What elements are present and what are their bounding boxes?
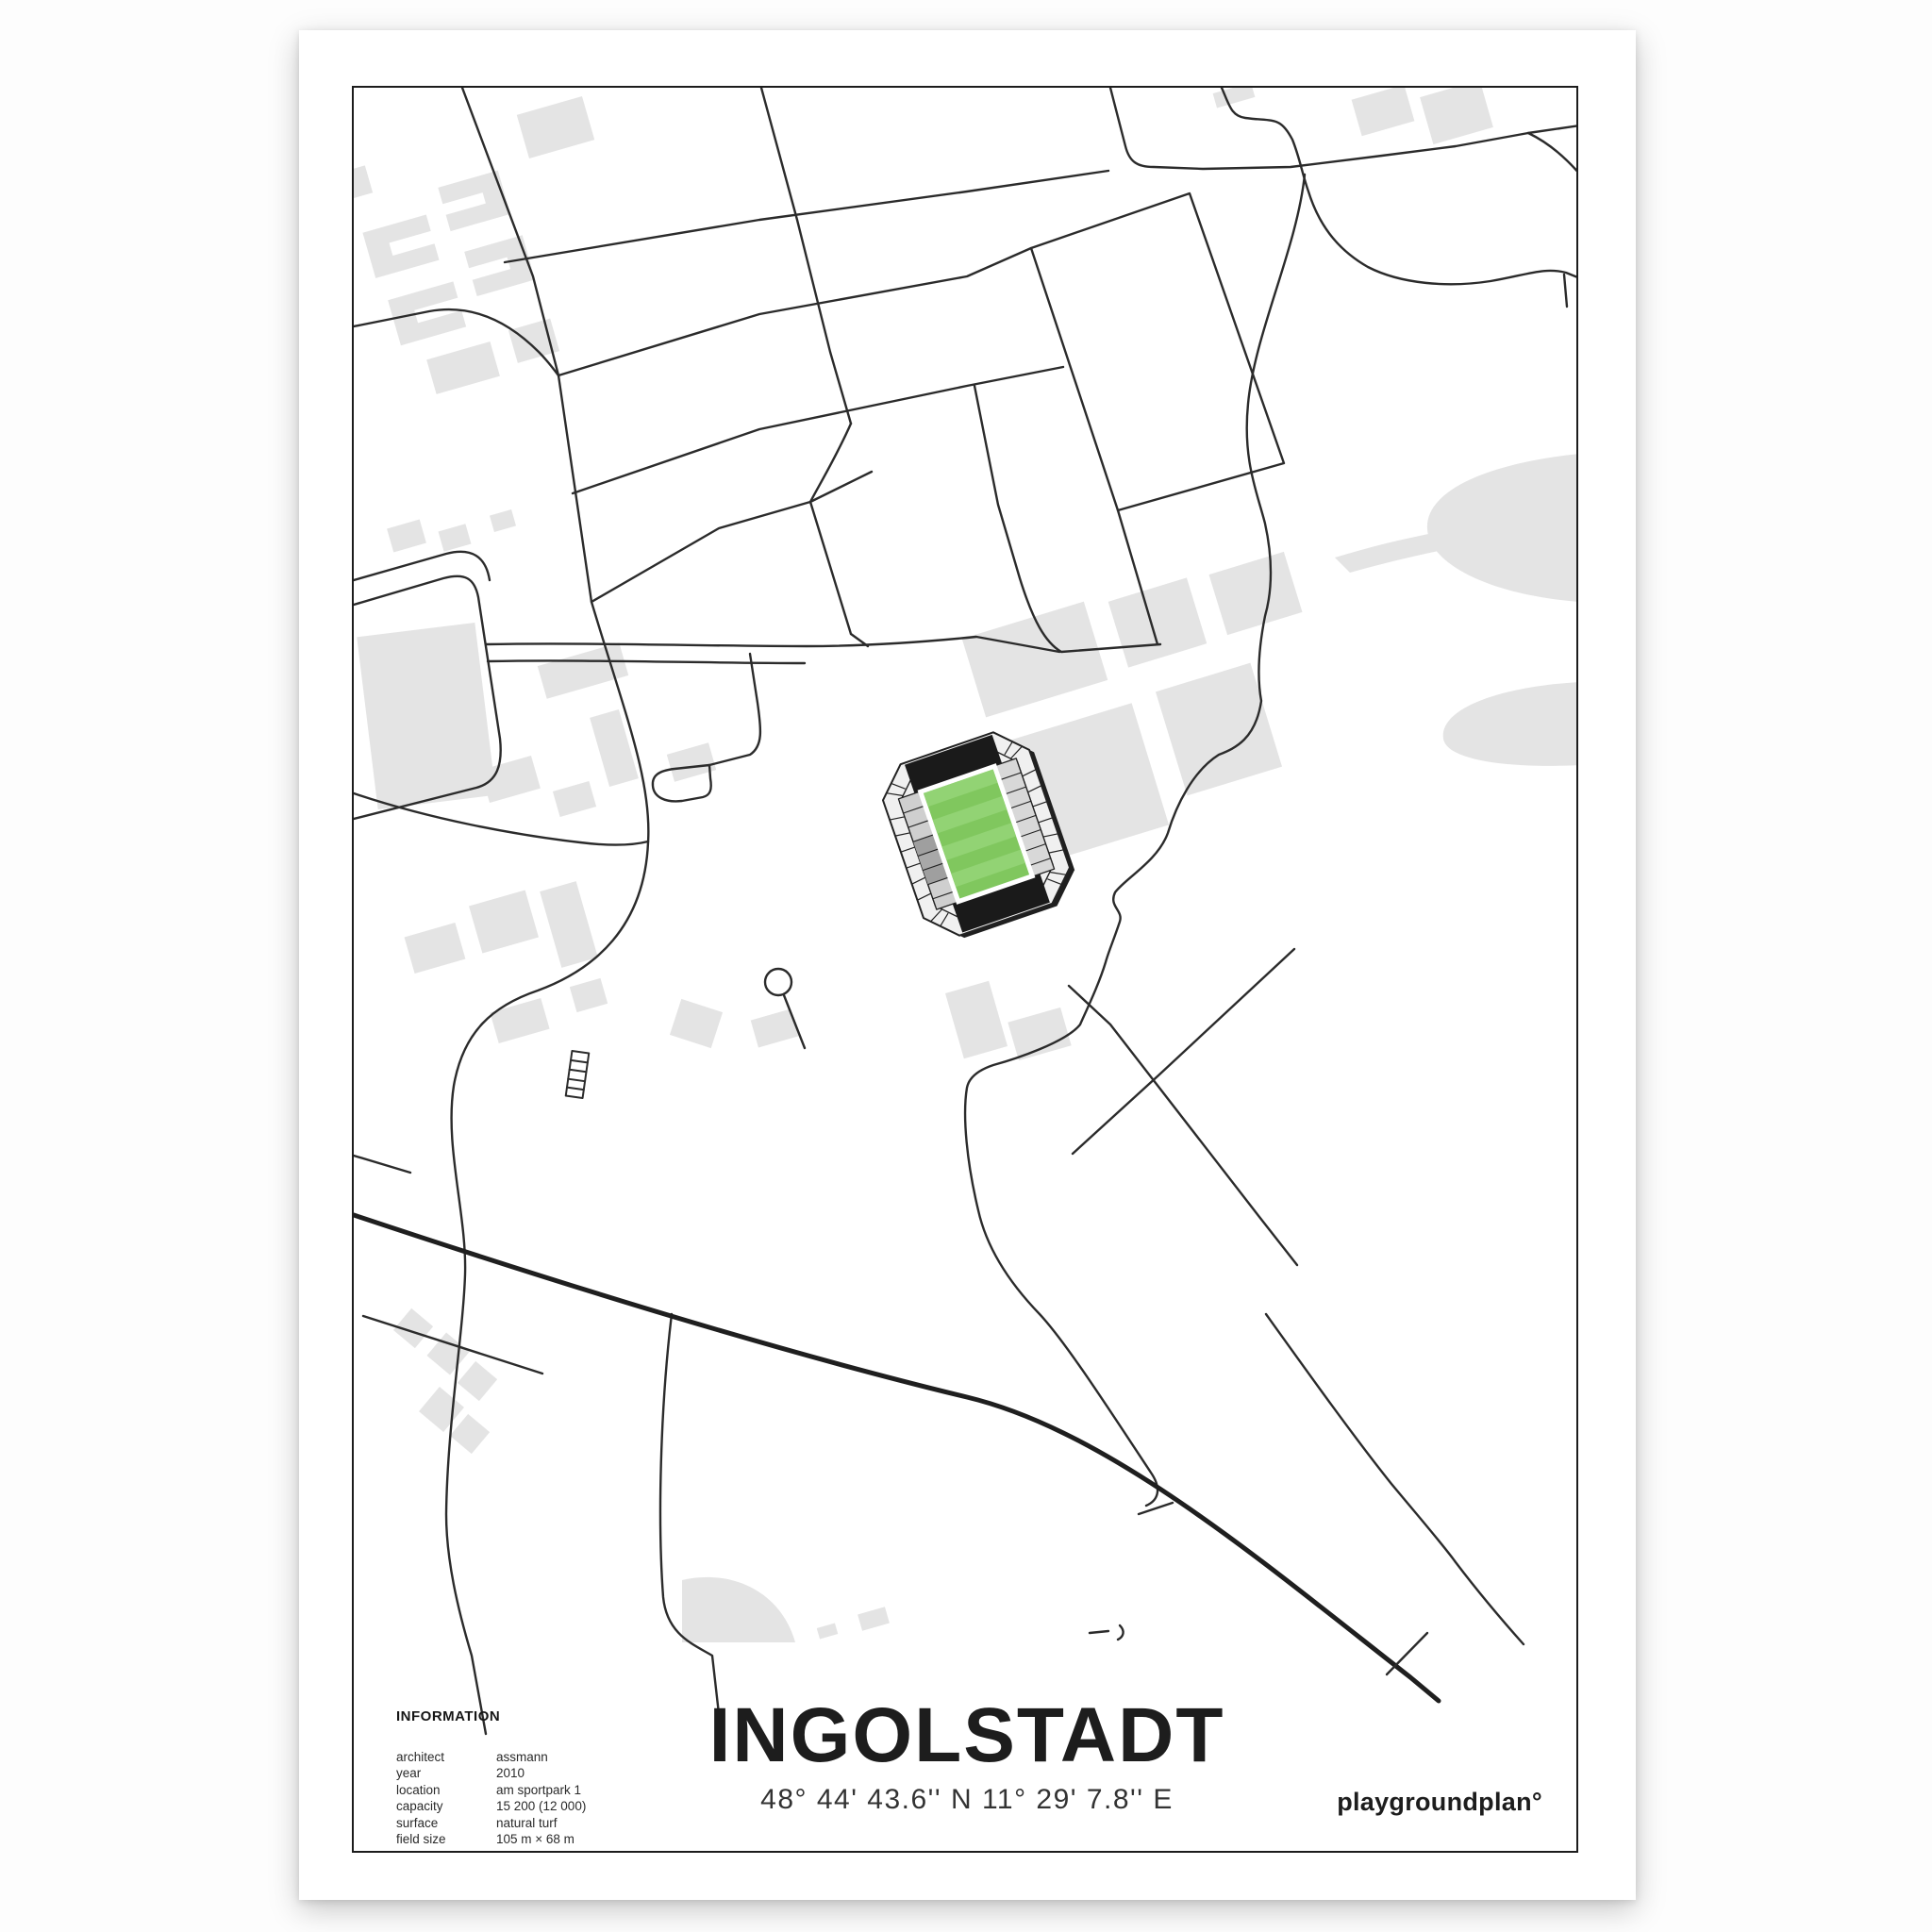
info-label: architect <box>396 1749 496 1765</box>
info-value: assmann <box>496 1749 548 1765</box>
building <box>1352 88 1415 136</box>
info-value: 2010 <box>496 1765 525 1781</box>
information-block: INFORMATION architect assmann year 2010 … <box>396 1708 586 1847</box>
info-value: natural turf <box>496 1815 558 1831</box>
poster-coordinates: 48° 44' 43.6'' N 11° 29' 7.8'' E <box>760 1784 1174 1816</box>
building <box>1420 88 1493 144</box>
info-row-capacity: capacity 15 200 (12 000) <box>396 1798 586 1814</box>
building <box>1213 88 1256 108</box>
info-row-architect: architect assmann <box>396 1749 586 1765</box>
roundabout <box>765 969 791 995</box>
info-label: surface <box>396 1815 496 1831</box>
map-frame: INFORMATION architect assmann year 2010 … <box>352 86 1578 1853</box>
field-parcel <box>1031 193 1284 510</box>
brand-logo: playgroundplan° <box>1337 1788 1542 1817</box>
info-label: capacity <box>396 1798 496 1814</box>
round-area <box>682 1577 795 1642</box>
main-road-thick <box>354 1215 1439 1701</box>
poster-title: INGOLSTADT <box>709 1697 1225 1774</box>
information-rows: architect assmann year 2010 location am … <box>396 1749 586 1847</box>
info-label: year <box>396 1765 496 1781</box>
map-svg <box>354 88 1578 1853</box>
info-row-surface: surface natural turf <box>396 1815 586 1831</box>
info-row-location: location am sportpark 1 <box>396 1782 586 1798</box>
striped-tower <box>566 1051 590 1098</box>
information-heading: INFORMATION <box>396 1708 586 1724</box>
road-crossing <box>1387 1633 1427 1674</box>
building <box>517 96 594 158</box>
parking-lot <box>357 623 495 809</box>
info-value: 15 200 (12 000) <box>496 1798 586 1814</box>
info-value: 105 m × 68 m <box>496 1831 575 1847</box>
info-label: location <box>396 1782 496 1798</box>
info-row-field-size: field size 105 m × 68 m <box>396 1831 586 1847</box>
info-row-year: year 2010 <box>396 1765 586 1781</box>
info-value: am sportpark 1 <box>496 1782 581 1798</box>
poster: INFORMATION architect assmann year 2010 … <box>299 30 1636 1900</box>
info-label: field size <box>396 1831 496 1847</box>
screen: INFORMATION architect assmann year 2010 … <box>0 0 1932 1932</box>
